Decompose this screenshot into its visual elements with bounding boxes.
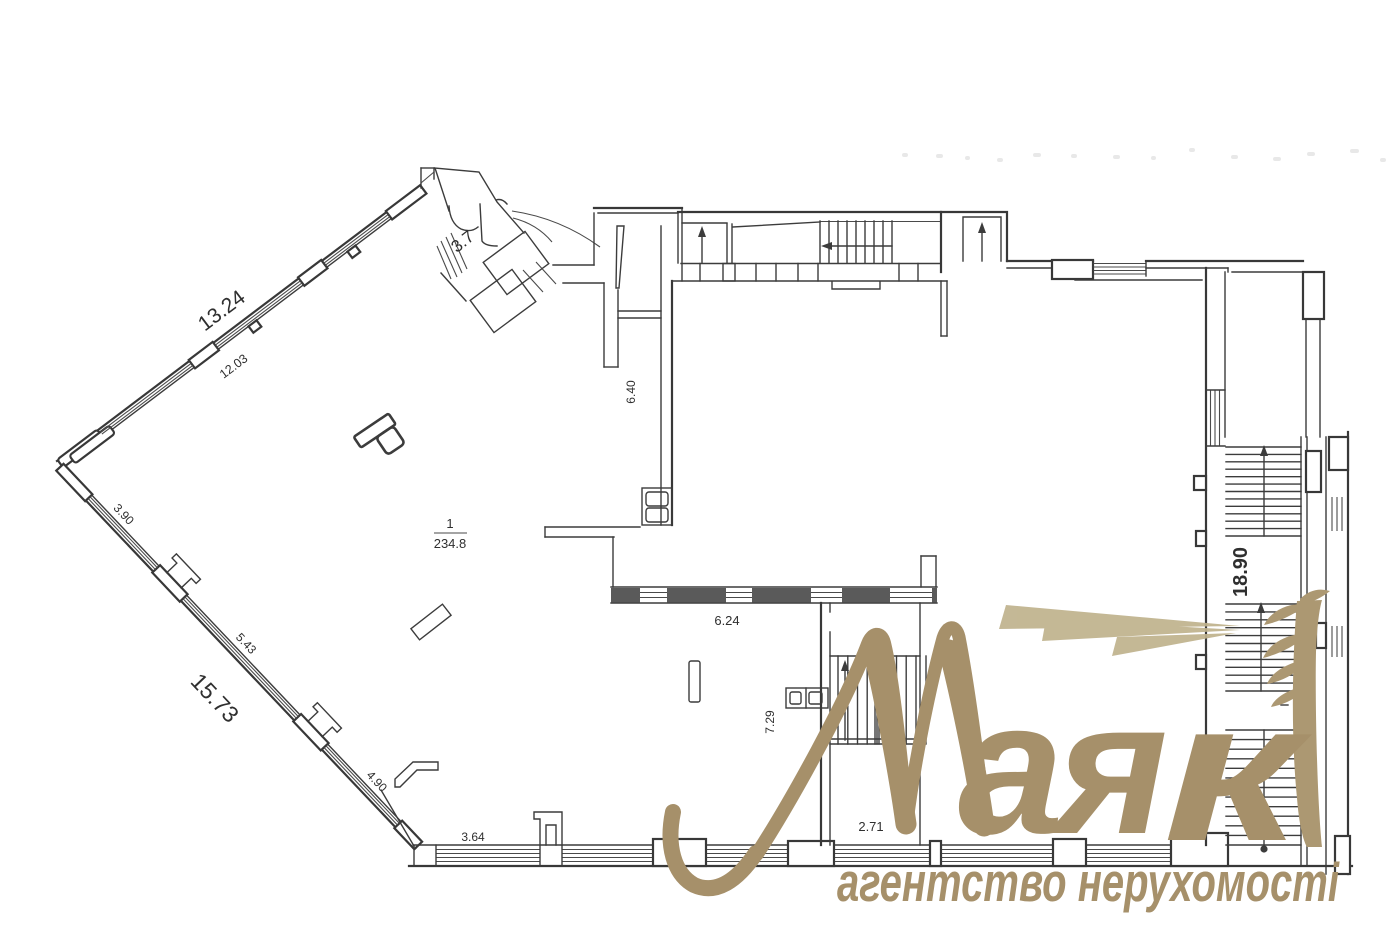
svg-text:4.90: 4.90 <box>364 768 390 795</box>
svg-text:1: 1 <box>446 516 453 531</box>
svg-text:агентство нерухомості: агентство нерухомості <box>837 851 1340 913</box>
svg-text:12.03: 12.03 <box>217 351 250 381</box>
svg-text:а: а <box>958 662 1064 874</box>
svg-text:234.8: 234.8 <box>434 536 467 551</box>
svg-text:2.71: 2.71 <box>858 819 883 834</box>
svg-text:3.7: 3.7 <box>447 227 477 257</box>
svg-text:3.90: 3.90 <box>111 501 137 528</box>
svg-text:к: к <box>1163 660 1313 883</box>
svg-text:я: я <box>1047 662 1168 874</box>
svg-text:3.64: 3.64 <box>461 830 485 844</box>
svg-text:6.24: 6.24 <box>714 613 739 628</box>
svg-text:7.29: 7.29 <box>763 710 777 734</box>
svg-text:15.73: 15.73 <box>186 668 244 728</box>
svg-text:6.40: 6.40 <box>624 380 638 404</box>
svg-text:18.90: 18.90 <box>1230 547 1252 597</box>
svg-text:5.43: 5.43 <box>233 630 259 657</box>
